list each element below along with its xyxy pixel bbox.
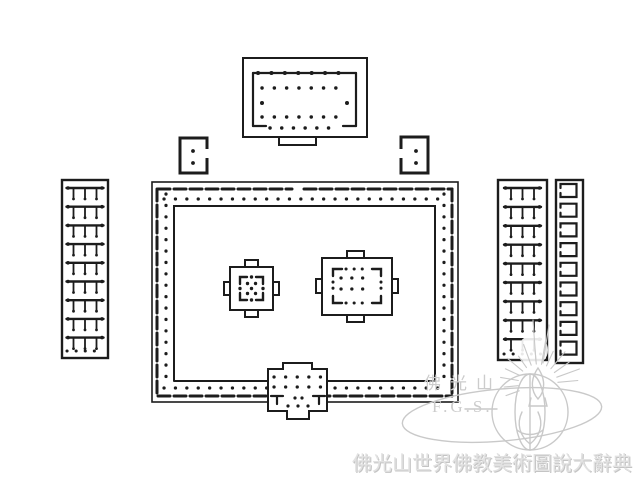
north-hall-porch <box>279 137 316 145</box>
hall-east-outer <box>556 180 583 363</box>
colonnade-bay <box>66 242 104 256</box>
colonnade-bay <box>66 298 104 312</box>
colonnade-bay <box>504 186 542 200</box>
colonnade-bay <box>504 319 542 333</box>
watermark-globe-icon <box>492 374 568 450</box>
colonnade-bay <box>66 336 104 350</box>
footer-title: 佛光山世界佛教美術圖說大辭典 <box>352 447 632 476</box>
colonnade-bay <box>66 186 104 200</box>
pavilion-east <box>399 137 429 173</box>
hall-east-inner <box>498 180 547 360</box>
colonnade-bay <box>504 281 542 295</box>
colonnade-bay <box>66 205 104 219</box>
colonnade-bay <box>504 243 542 257</box>
plan-canvas: 佛光山 F.G.S. 佛光山世界佛教美術圖說大辭典 <box>0 0 638 480</box>
pavilion-east-door <box>399 149 406 158</box>
colonnade-bay <box>66 224 104 238</box>
cell-bay <box>561 243 577 256</box>
cell-bay <box>561 283 577 296</box>
colonnade-bay <box>504 300 542 314</box>
hall-west <box>62 180 108 358</box>
colonnade-bay <box>504 224 542 238</box>
colonnade-bay <box>504 262 542 276</box>
shrine-east-outline <box>322 258 392 315</box>
colonnade-bay <box>504 205 542 219</box>
south-gatehouse-outline <box>268 363 327 419</box>
cell-bay <box>561 263 577 276</box>
pavilion-west-door <box>203 149 210 158</box>
south-gatehouse <box>268 363 327 419</box>
cell-bay <box>561 322 577 335</box>
cell-bay <box>561 223 577 236</box>
colonnade-bay <box>66 261 104 275</box>
shrine-east <box>316 251 398 322</box>
temple-plan-drawing: 佛光山 F.G.S. <box>0 0 638 480</box>
cell-bay <box>561 204 577 217</box>
colonnade-bay <box>66 280 104 294</box>
north-hall <box>243 58 367 145</box>
enclosure-column-dots <box>164 194 446 388</box>
shrine-west <box>224 260 279 317</box>
watermark-abbr-text: F.G.S. <box>432 397 493 416</box>
watermark-logo: 佛光山 F.G.S. <box>400 320 604 450</box>
colonnade-bay <box>66 317 104 331</box>
watermark-sitename-text: 佛光山 <box>424 374 502 393</box>
cell-bay <box>561 342 577 355</box>
cell-bay <box>561 184 577 197</box>
cell-bay <box>561 302 577 315</box>
pavilion-west <box>180 138 210 173</box>
